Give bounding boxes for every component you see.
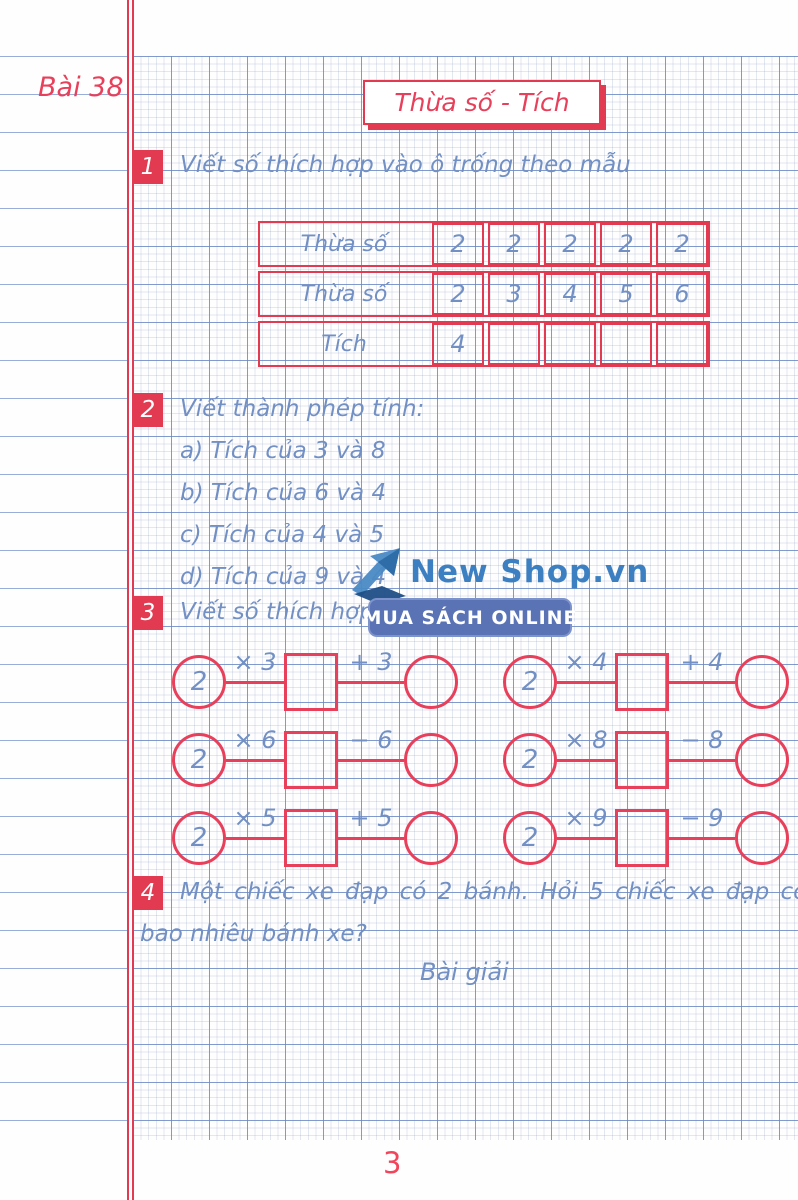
connector-line: × 9 <box>557 837 615 840</box>
operator-label: + 5 <box>338 804 404 832</box>
diagram-chain: 2 × 8 − 8 <box>503 728 789 792</box>
operator-label: × 8 <box>557 726 615 754</box>
mua-sach-online-banner: MUA SÁCH ONLINE <box>368 598 572 637</box>
table-cell-blank <box>656 323 708 365</box>
exercise2-heading: Viết thành phép tính: <box>180 396 424 422</box>
table-row: Thừa số 2 2 2 2 2 <box>258 221 710 267</box>
exercise2-number-badge: 2 <box>133 393 163 427</box>
exercise1-number-badge: 1 <box>133 150 163 184</box>
lesson-label: Bài 38 <box>38 72 124 103</box>
operator-label: × 3 <box>226 648 284 676</box>
table-cell: 4 <box>432 323 484 365</box>
exercise4-text-line1: Một chiếc xe đạp có 2 bánh. Hỏi 5 chiếc … <box>180 879 798 905</box>
page-number: 3 <box>383 1146 401 1180</box>
newshop-watermark: New Shop.vn MUA SÁCH ONLINE <box>348 544 412 610</box>
start-circle: 2 <box>172 811 226 865</box>
table-cell-blank <box>488 323 540 365</box>
exercise1-table: Thừa số 2 2 2 2 2 Thừa số 2 3 4 5 6 Tích… <box>258 221 710 371</box>
table-row: Thừa số 2 3 4 5 6 <box>258 271 710 317</box>
operator-label: × 4 <box>557 648 615 676</box>
table-cell: 5 <box>600 273 652 315</box>
answer-circle <box>404 811 458 865</box>
operator-label: × 9 <box>557 804 615 832</box>
operator-label: + 3 <box>338 648 404 676</box>
connector-line: × 5 <box>226 837 284 840</box>
diagram-chain: 2 × 4 + 4 <box>503 650 789 714</box>
table-row-label: Thừa số <box>260 223 428 265</box>
table-cell: 2 <box>656 223 708 265</box>
answer-box <box>615 809 669 867</box>
answer-circle <box>404 733 458 787</box>
operator-label: − 9 <box>669 804 735 832</box>
table-cell-blank <box>544 323 596 365</box>
answer-box <box>284 731 338 789</box>
start-circle: 2 <box>503 811 557 865</box>
table-row: Tích 4 <box>258 321 710 367</box>
operator-label: × 5 <box>226 804 284 832</box>
connector-line: × 6 <box>226 759 284 762</box>
table-cell: 2 <box>544 223 596 265</box>
table-cell: 2 <box>488 223 540 265</box>
connector-line: + 5 <box>338 837 404 840</box>
connector-line: − 9 <box>669 837 735 840</box>
start-circle: 2 <box>503 655 557 709</box>
operator-label: − 6 <box>338 726 404 754</box>
table-cell: 2 <box>432 223 484 265</box>
operator-label: − 8 <box>669 726 735 754</box>
connector-line: × 8 <box>557 759 615 762</box>
exercise2-item-b: b) Tích của 6 và 4 <box>180 480 386 506</box>
exercise4-number-badge: 4 <box>133 876 163 910</box>
diagram-chain: 2 × 9 − 9 <box>503 806 789 870</box>
start-circle: 2 <box>503 733 557 787</box>
start-circle: 2 <box>172 655 226 709</box>
table-cell: 2 <box>600 223 652 265</box>
table-row-label: Tích <box>260 323 428 365</box>
answer-circle <box>404 655 458 709</box>
double-arrow-icon <box>348 544 412 606</box>
answer-box <box>615 731 669 789</box>
answer-circle <box>735 733 789 787</box>
table-cell: 3 <box>488 273 540 315</box>
connector-line: × 3 <box>226 681 284 684</box>
connector-line: + 4 <box>669 681 735 684</box>
connector-line: × 4 <box>557 681 615 684</box>
exercise4-text-line2: bao nhiêu bánh xe? <box>140 921 367 947</box>
exercise1-heading: Viết số thích hợp vào ô trống theo mẫu <box>180 152 631 178</box>
answer-box <box>284 653 338 711</box>
exercise3-heading: Viết số thích hợp <box>180 599 374 625</box>
connector-line: − 8 <box>669 759 735 762</box>
answer-box <box>615 653 669 711</box>
diagram-chain: 2 × 6 − 6 <box>172 728 458 792</box>
table-row-label: Thừa số <box>260 273 428 315</box>
lesson-title-box: Thừa số - Tích <box>363 80 601 125</box>
answer-circle <box>735 655 789 709</box>
start-circle: 2 <box>172 733 226 787</box>
connector-line: − 6 <box>338 759 404 762</box>
operator-label: + 4 <box>669 648 735 676</box>
table-cell: 4 <box>544 273 596 315</box>
connector-line: + 3 <box>338 681 404 684</box>
newshop-brand-text: New Shop.vn <box>410 554 649 590</box>
exercise3-number-badge: 3 <box>133 596 163 630</box>
lesson-title: Thừa số - Tích <box>394 88 569 117</box>
diagram-chain: 2 × 5 + 5 <box>172 806 458 870</box>
left-ruled-lines <box>0 56 127 1140</box>
answer-box <box>284 809 338 867</box>
exercise2-item-a: a) Tích của 3 và 8 <box>180 438 386 464</box>
table-cell-blank <box>600 323 652 365</box>
table-cell: 2 <box>432 273 484 315</box>
workbook-page: Bài 38 Thừa số - Tích 1 Viết số thích hợ… <box>0 0 798 1200</box>
answer-circle <box>735 811 789 865</box>
solution-label: Bài giải <box>420 958 509 986</box>
table-cell: 6 <box>656 273 708 315</box>
operator-label: × 6 <box>226 726 284 754</box>
diagram-chain: 2 × 3 + 3 <box>172 650 458 714</box>
